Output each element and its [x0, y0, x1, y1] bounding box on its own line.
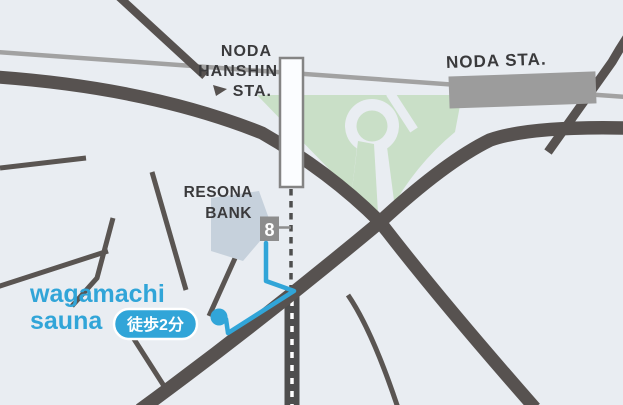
walk-time-text: 徒歩2分 [126, 315, 184, 334]
noda-hanshin-line1: NODA [221, 43, 272, 60]
noda-sta-label: NODA STA. [446, 50, 547, 72]
exit-number: 8 [264, 220, 274, 240]
venue-name-line2: sauna [30, 307, 103, 335]
venue-name-line1: wagamachi [29, 280, 165, 308]
station-building-noda [448, 71, 596, 108]
noda-hanshin-line2: HANSHIN [198, 63, 278, 80]
resona-line2: BANK [205, 205, 252, 222]
noda-hanshin-line3: STA. [233, 83, 272, 100]
railway-band [285, 296, 300, 405]
station-building-hanshin [280, 58, 303, 187]
access-map: 8 NODA HANSHIN STA. NODA STA. RESONA BAN… [0, 0, 623, 405]
resona-line1: RESONA [184, 184, 253, 201]
walk-time-badge: 徒歩2分 [114, 309, 197, 339]
location-dot-icon [211, 309, 228, 326]
